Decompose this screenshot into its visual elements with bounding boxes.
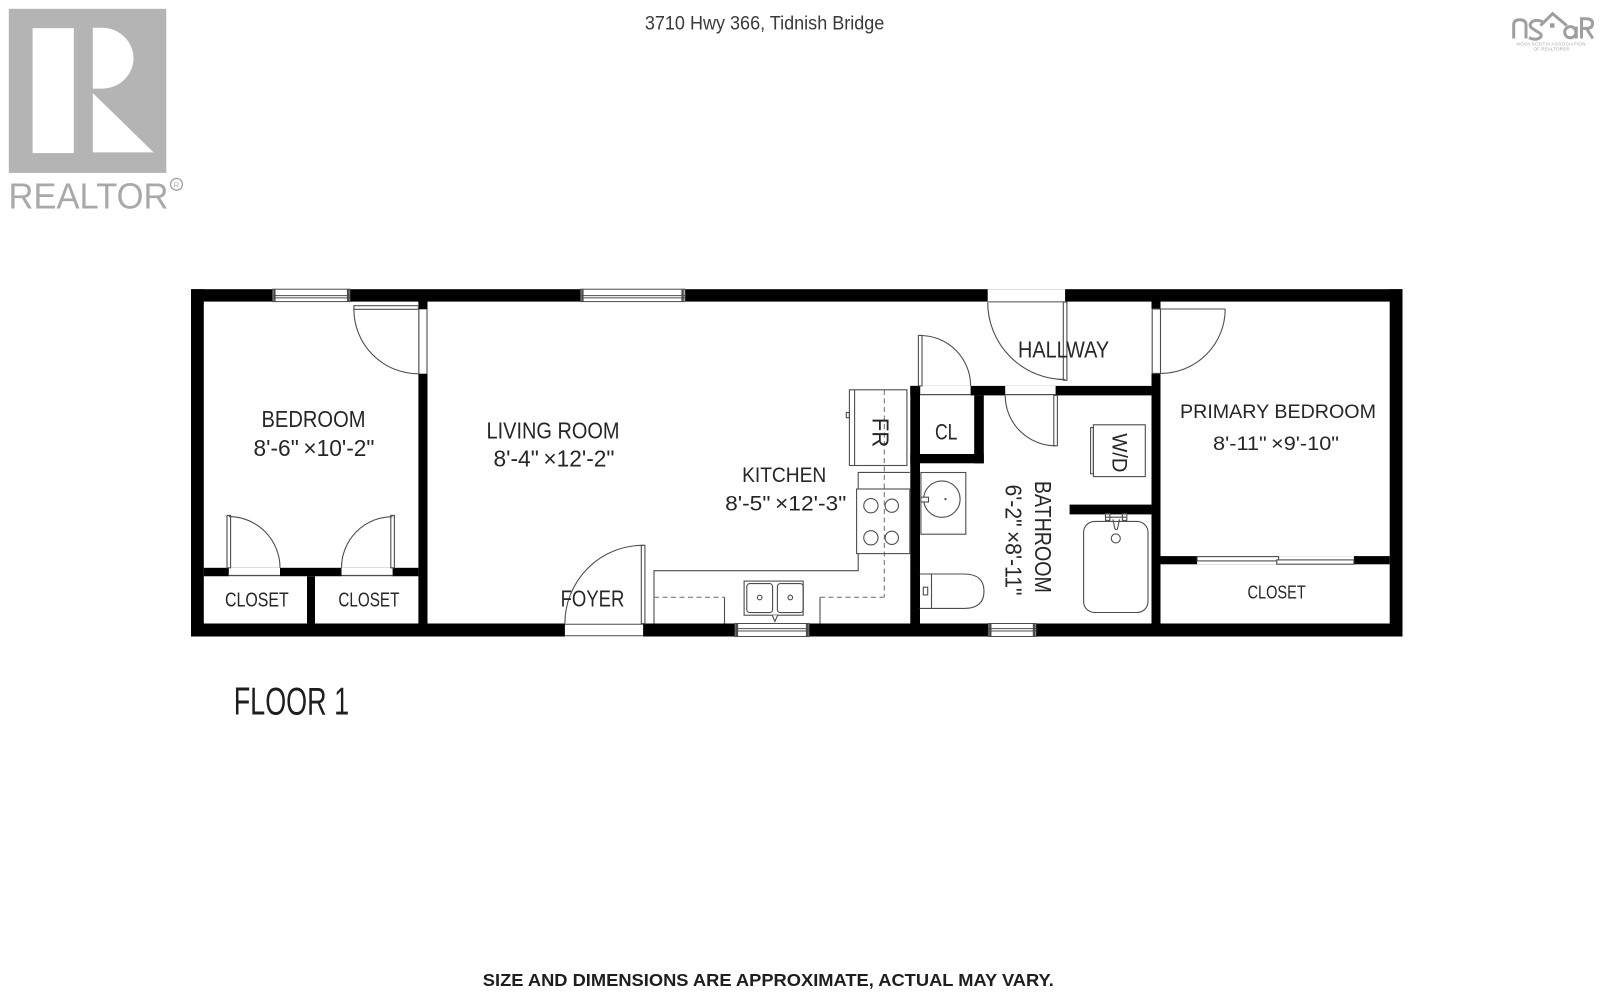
svg-text:KITCHEN: KITCHEN <box>742 463 826 487</box>
svg-text:8'-5" ×12'-3": 8'-5" ×12'-3" <box>725 492 846 516</box>
svg-text:FOYER: FOYER <box>561 585 625 611</box>
svg-text:LIVING ROOM: LIVING ROOM <box>487 418 620 444</box>
svg-text:HALLWAY: HALLWAY <box>1018 337 1109 363</box>
svg-text:6'-2" ×8'-11": 6'-2" ×8'-11" <box>1000 485 1026 596</box>
svg-text:FR: FR <box>867 418 893 448</box>
svg-text:SIZE AND DIMENSIONS ARE APPROX: SIZE AND DIMENSIONS ARE APPROXIMATE, ACT… <box>483 970 1054 990</box>
svg-text:R: R <box>174 180 180 189</box>
svg-text:8'-4" ×12'-2": 8'-4" ×12'-2" <box>494 446 615 472</box>
svg-text:CLOSET: CLOSET <box>338 588 399 611</box>
svg-text:PRIMARY BEDROOM: PRIMARY BEDROOM <box>1180 401 1376 423</box>
svg-text:8'-6" ×10'-2": 8'-6" ×10'-2" <box>254 435 375 461</box>
svg-text:W/D: W/D <box>1108 433 1131 472</box>
svg-text:CLOSET: CLOSET <box>1247 582 1305 603</box>
svg-text:REALTOR: REALTOR <box>9 176 169 217</box>
svg-text:BEDROOM: BEDROOM <box>262 406 366 432</box>
svg-text:8'-11" ×9'-10": 8'-11" ×9'-10" <box>1213 433 1339 455</box>
svg-text:FLOOR 1: FLOOR 1 <box>234 680 350 724</box>
svg-text:BATHROOM: BATHROOM <box>1030 481 1056 593</box>
svg-text:3710 Hwy 366, Tidnish Bridge: 3710 Hwy 366, Tidnish Bridge <box>645 13 885 35</box>
svg-text:OF REALTORS®: OF REALTORS® <box>1534 46 1571 52</box>
svg-text:CL: CL <box>935 420 958 445</box>
svg-text:CLOSET: CLOSET <box>225 588 289 611</box>
